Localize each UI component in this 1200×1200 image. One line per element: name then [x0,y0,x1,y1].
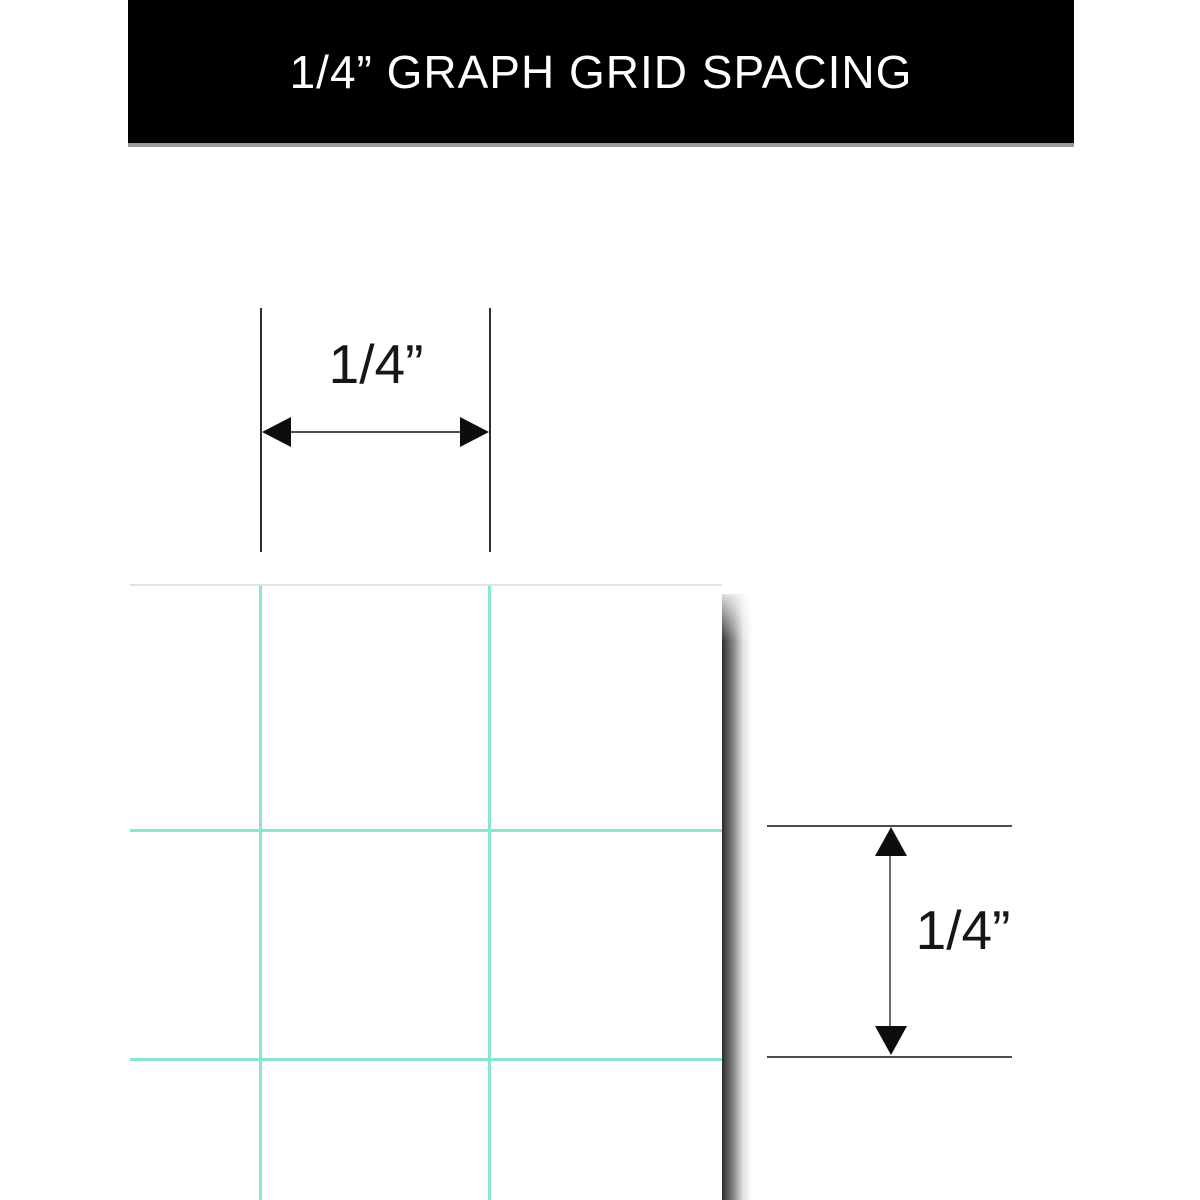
grid-line-vertical-2 [488,586,491,1200]
paper-shadow-top-fade [722,584,752,642]
arrowhead-left-icon [262,417,291,447]
grid-line-horizontal-1 [130,829,722,832]
product-image: 1/4” GRAPH GRID SPACING 1/4” 1/4” [0,0,1200,1200]
paper-shadow [722,594,752,1200]
banner-title: 1/4” GRAPH GRID SPACING [290,45,913,99]
grid-line-vertical-1 [259,586,262,1200]
grid-line-horizontal-2 [130,1058,722,1061]
title-banner: 1/4” GRAPH GRID SPACING [128,0,1074,147]
arrowhead-right-icon [460,417,489,447]
extension-line-bottom [767,1056,1012,1058]
horizontal-dimension-label: 1/4” [261,337,491,392]
vertical-dimension-label: 1/4” [902,903,1024,958]
arrowhead-down-icon [875,1026,907,1055]
horizontal-arrow-line [270,431,482,433]
arrowhead-up-icon [875,827,907,856]
vertical-arrow-line [889,853,891,1030]
graph-paper-sample [130,584,722,1200]
